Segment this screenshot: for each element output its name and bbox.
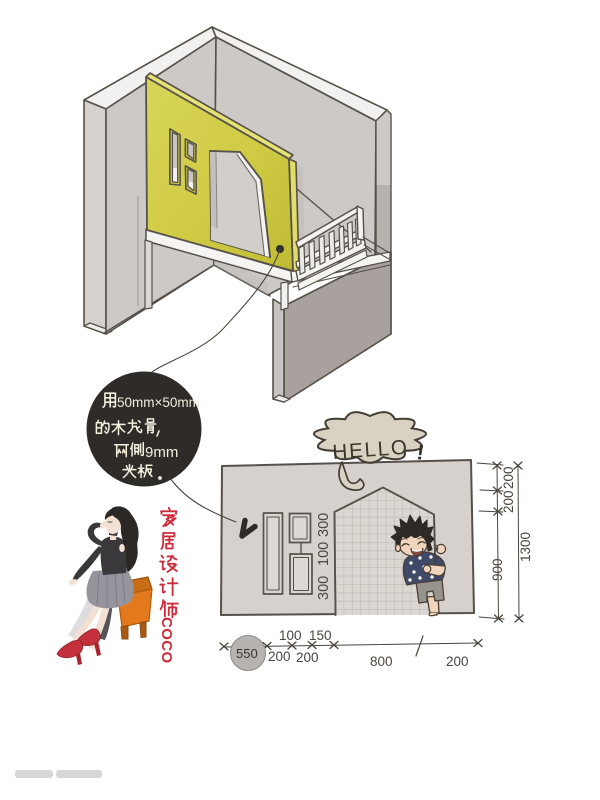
svg-text:200: 200 bbox=[446, 654, 469, 669]
svg-text:200: 200 bbox=[268, 649, 291, 664]
svg-text:200: 200 bbox=[296, 650, 319, 665]
svg-text:9mm: 9mm bbox=[145, 444, 178, 461]
svg-text:100: 100 bbox=[316, 542, 332, 566]
svg-text:150: 150 bbox=[309, 628, 332, 643]
svg-text:550: 550 bbox=[236, 646, 258, 661]
svg-text:800: 800 bbox=[370, 654, 393, 669]
svg-text:300: 300 bbox=[316, 576, 332, 600]
svg-text:100: 100 bbox=[279, 628, 302, 643]
svg-text:50mm×50mm: 50mm×50mm bbox=[117, 395, 200, 410]
svg-text:300: 300 bbox=[316, 513, 332, 537]
svg-text:200: 200 bbox=[501, 490, 516, 513]
svg-text:COCO: COCO bbox=[158, 617, 175, 664]
svg-text:200: 200 bbox=[501, 466, 516, 489]
svg-text:900: 900 bbox=[490, 558, 505, 581]
svg-text:1300: 1300 bbox=[518, 532, 533, 562]
